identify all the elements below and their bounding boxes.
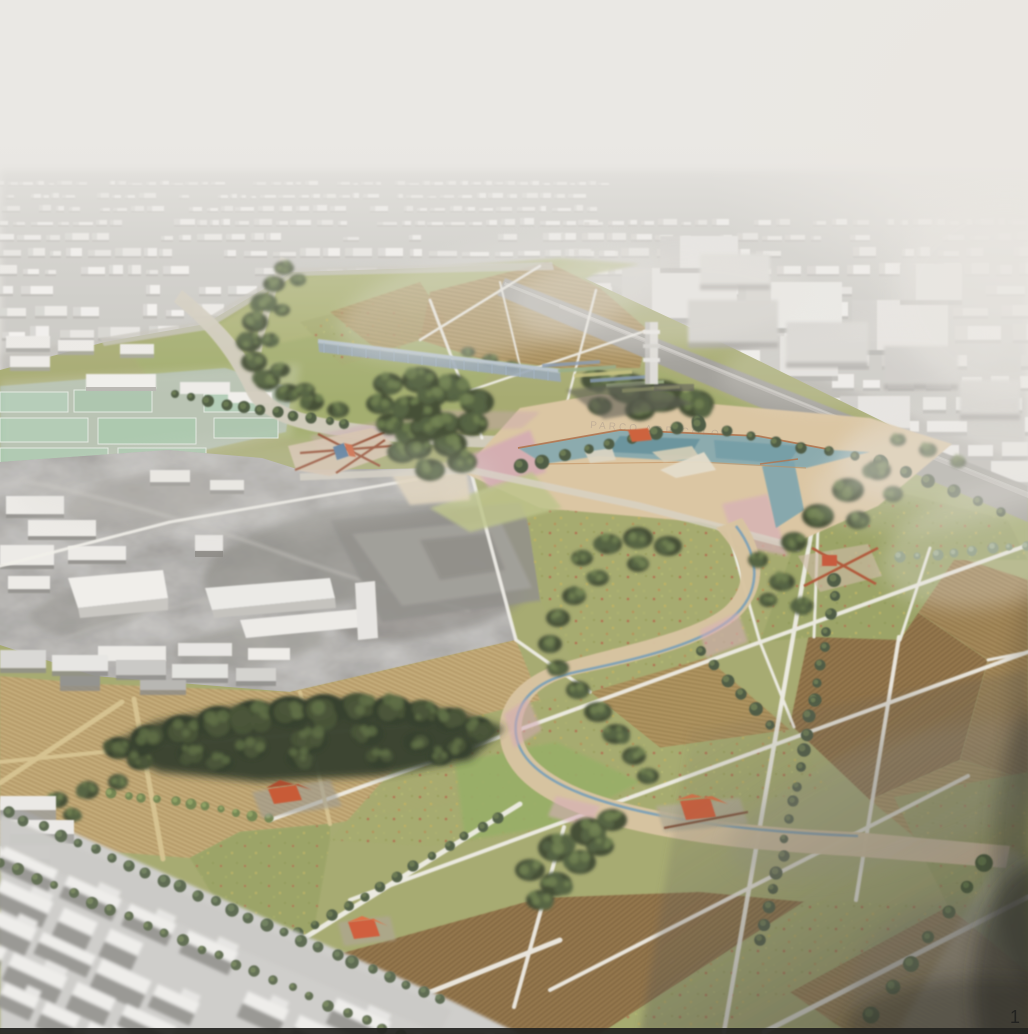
svg-text:1: 1 <box>1010 1007 1020 1027</box>
